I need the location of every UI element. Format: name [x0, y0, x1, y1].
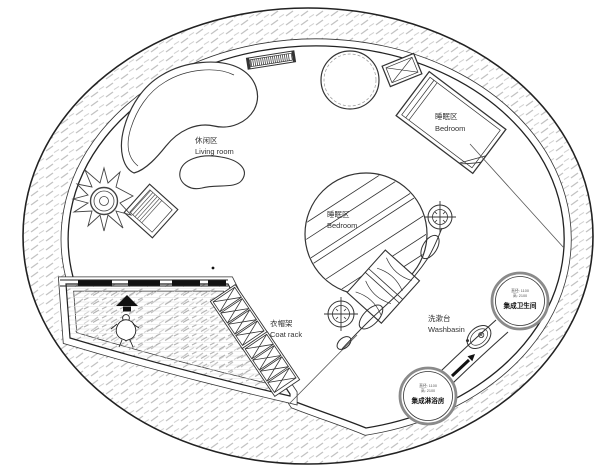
- label-coat-rack-zh: 衣帽架: [270, 318, 293, 328]
- floor-plan-page: 直径: 1100 高: 2100 集成卫生间 直径: 1100 高: 2100 …: [0, 0, 611, 473]
- bathroom-pod-dim-diameter: 直径: 1100: [511, 288, 529, 293]
- shower-pod-label: 集成淋浴房: [411, 396, 445, 405]
- bathroom-pod-dim-height: 高: 2100: [513, 293, 527, 298]
- label-bedroom-upper-en: Bedroom: [435, 124, 465, 133]
- shower-pod-dim-diameter: 直径: 1100: [419, 383, 437, 388]
- bathroom-pod-label: 集成卫生间: [503, 301, 537, 310]
- label-living-room-zh: 休闲区: [195, 135, 218, 145]
- dot-mark: [212, 267, 215, 270]
- label-coat-rack-en: Coat rack: [270, 330, 302, 339]
- floor-plan-svg: 直径: 1100 高: 2100 集成卫生间 直径: 1100 高: 2100 …: [0, 0, 611, 473]
- label-bedroom-center-zh: 睡眠区: [327, 210, 350, 219]
- label-washbasin-en: Washbasin: [428, 325, 465, 334]
- label-bedroom-upper-zh: 睡眠区: [435, 112, 458, 121]
- label-living-room-en: Living room: [195, 147, 234, 156]
- label-washbasin-zh: 洗漱台: [428, 313, 451, 323]
- shower-pod-dim-height: 高: 2100: [421, 388, 435, 393]
- coffee-table: [180, 156, 245, 189]
- bathroom-pod: 直径: 1100 高: 2100 集成卫生间: [492, 273, 548, 329]
- label-bedroom-center-en: Bedroom: [327, 221, 357, 230]
- round-table: [321, 51, 379, 109]
- shower-pod: 直径: 1100 高: 2100 集成淋浴房: [400, 368, 456, 424]
